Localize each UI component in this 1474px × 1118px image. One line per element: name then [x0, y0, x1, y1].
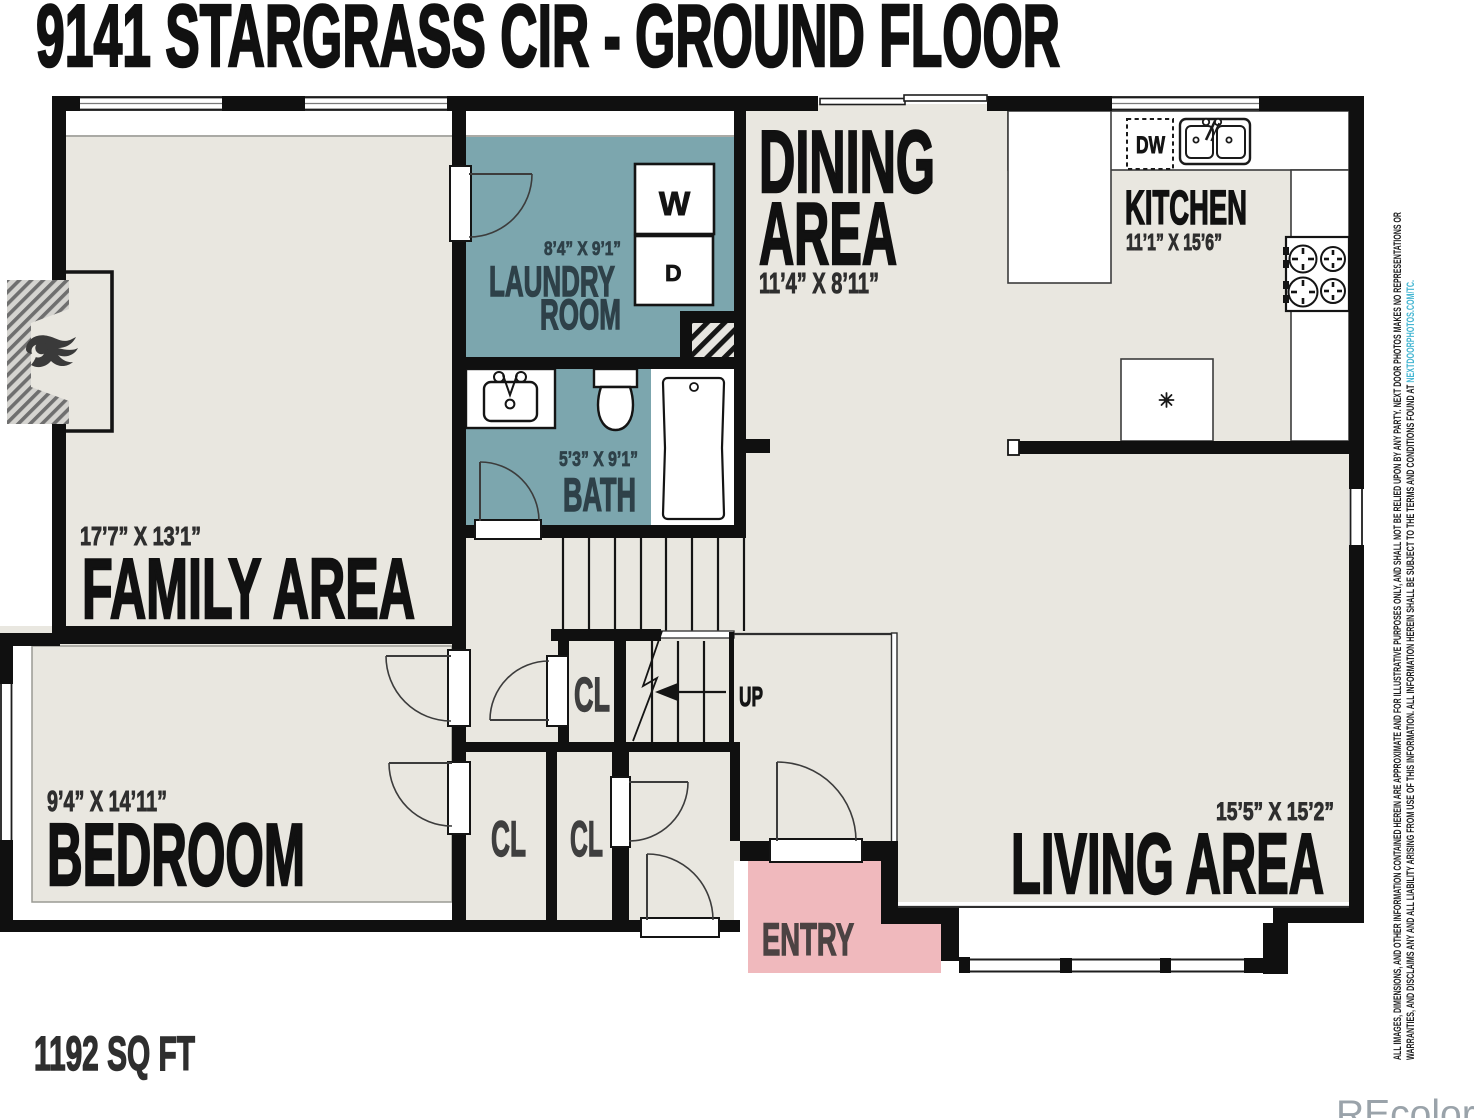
svg-text:11’4” X 8’11”: 11’4” X 8’11” [759, 268, 879, 300]
svg-text:REcolorado: REcolorado [1336, 1093, 1474, 1118]
svg-text:WARRANTIES, AND DISCLAIMS ANY: WARRANTIES, AND DISCLAIMS ANY AND ALL LI… [1405, 280, 1417, 1060]
svg-text:FAMILY AREA: FAMILY AREA [82, 542, 415, 637]
svg-text:CL: CL [574, 669, 610, 722]
svg-text:1192 SQ FT: 1192 SQ FT [34, 1028, 195, 1081]
svg-text:ENTRY: ENTRY [762, 914, 854, 965]
svg-text:9141 STARGRASS CIR - GROUND FL: 9141 STARGRASS CIR - GROUND FLOOR [36, 0, 1060, 85]
svg-text:ALL IMAGES, DIMENSIONS, AND OT: ALL IMAGES, DIMENSIONS, AND OTHER INFORM… [1392, 212, 1404, 1060]
svg-text:D: D [665, 260, 682, 286]
svg-text:DW: DW [1136, 132, 1165, 159]
svg-text:CL: CL [570, 811, 603, 867]
svg-text:CL: CL [491, 811, 526, 867]
svg-text:8’4” X 9’1”: 8’4” X 9’1” [544, 238, 621, 260]
svg-text:KITCHEN: KITCHEN [1125, 182, 1247, 235]
svg-text:BEDROOM: BEDROOM [47, 805, 305, 904]
svg-text:UP: UP [739, 681, 763, 712]
svg-text:BATH: BATH [563, 468, 636, 521]
svg-text:ROOM: ROOM [540, 291, 621, 339]
svg-text:11’1” X 15’6”: 11’1” X 15’6” [1126, 229, 1222, 255]
svg-text:W: W [659, 185, 691, 222]
svg-text:LIVING AREA: LIVING AREA [1011, 817, 1324, 912]
